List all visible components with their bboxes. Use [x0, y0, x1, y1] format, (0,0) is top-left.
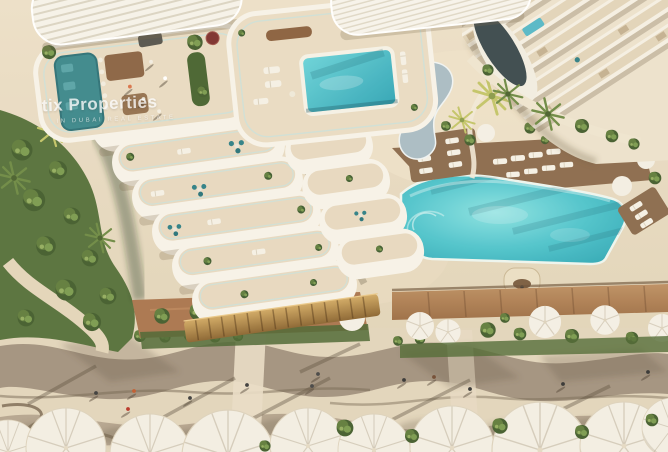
warm-light-overlay: [0, 0, 668, 452]
aerial-resort-render: tix Properties IN DUBAI REAL ESTATE: [0, 0, 668, 452]
render-canvas: [0, 0, 668, 452]
